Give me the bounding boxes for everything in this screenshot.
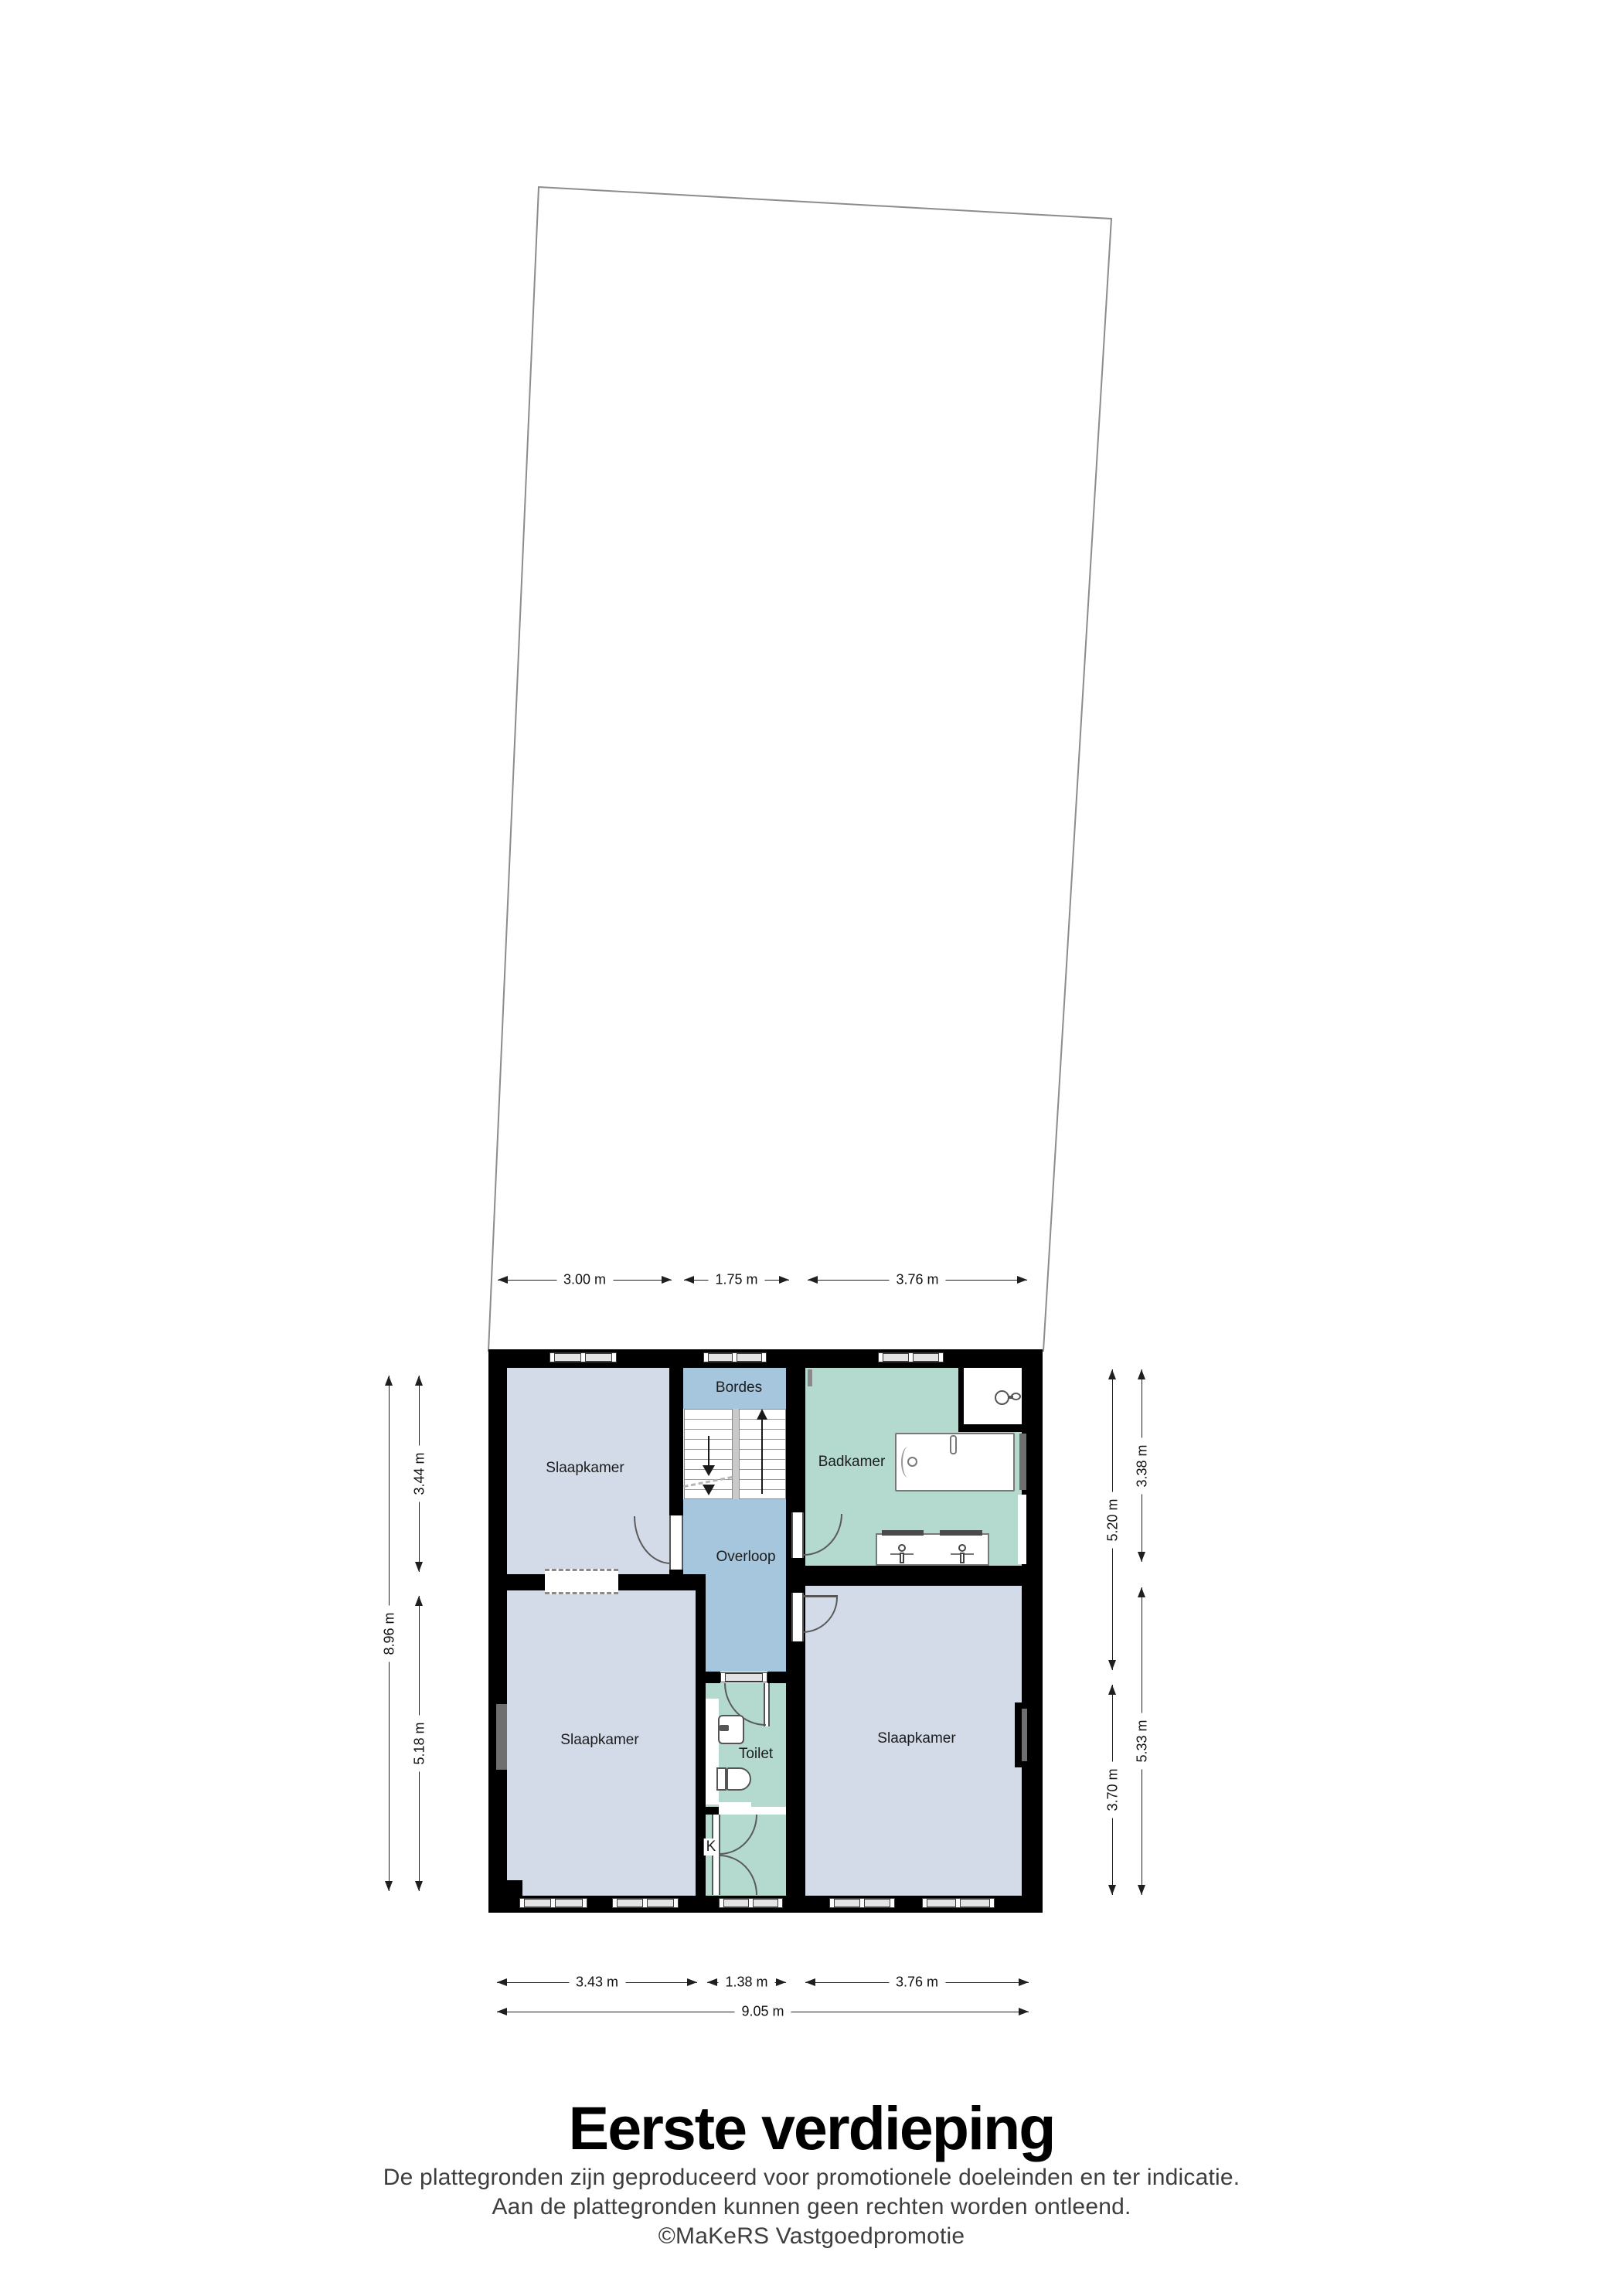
window-cap	[611, 1352, 617, 1362]
lot-outline	[0, 0, 1623, 2296]
window-cap	[938, 1352, 944, 1362]
left-wall-radiator	[496, 1704, 507, 1770]
stairs-up-arrow-shaft	[761, 1419, 763, 1494]
wall-corner-bottom-left	[488, 1880, 522, 1913]
label-slaapkamer-bottom-left: Slaapkamer	[560, 1732, 638, 1749]
badkamer-right-recess	[1018, 1495, 1026, 1564]
dim-bottom-total-label: 9.05 m	[734, 2004, 791, 2020]
vanity-tap-stem-right	[960, 1553, 965, 1563]
window-cap	[642, 1898, 648, 1908]
window-cap	[703, 1352, 709, 1362]
vanity-double-sink	[876, 1533, 989, 1566]
stairs-down-arrow-icon	[703, 1485, 715, 1495]
kast-threshold	[719, 1802, 751, 1809]
disclaimer: De plattegronden zijn geproduceerd voor …	[0, 2163, 1623, 2251]
window-cap	[550, 1352, 555, 1362]
stairs-down-arrow-icon	[703, 1465, 715, 1476]
dim-right-room-seg-2-label: 5.33 m	[1135, 1713, 1151, 1769]
label-kast: K	[704, 1839, 719, 1856]
dim-top-1-label: 3.00 m	[556, 1272, 613, 1288]
disclaimer-line-2: Aan de plattegronden kunnen geen rechten…	[0, 2192, 1623, 2222]
dim-right-room-seg-1: 3.38 m	[1142, 1369, 1142, 1562]
label-badkamer: Badkamer	[818, 1454, 886, 1471]
dim-top-3-label: 3.76 m	[889, 1272, 945, 1288]
toilet-door-opening	[720, 1672, 767, 1682]
wall-opening-dashed	[545, 1569, 618, 1594]
window-cap	[732, 1352, 737, 1362]
dim-right-room-seg-2: 5.33 m	[1142, 1587, 1142, 1895]
badkamer-corner-tick	[808, 1369, 812, 1386]
window-cap	[922, 1898, 927, 1908]
window-cap	[762, 1672, 767, 1682]
vanity-tap-left	[898, 1544, 906, 1552]
label-toilet: Toilet	[739, 1746, 773, 1763]
wall-alcove-left	[958, 1368, 964, 1424]
wall-alcove-bottom	[958, 1424, 1022, 1432]
window-cap	[761, 1352, 767, 1362]
label-overloop: Overloop	[716, 1549, 775, 1566]
wall-toilet-kast-divider	[706, 1807, 719, 1815]
dim-bottom-2-label: 1.38 m	[718, 1975, 774, 1991]
dim-top-1: 3.00 m	[498, 1280, 672, 1281]
window-cap	[989, 1898, 995, 1908]
dim-left-seg-1: 3.44 m	[419, 1376, 420, 1572]
dim-top-3: 3.76 m	[808, 1280, 1027, 1281]
bathtub-faucet	[950, 1435, 957, 1454]
dim-left-seg-2-label: 5.18 m	[412, 1715, 428, 1771]
vanity-shelf-right	[940, 1530, 982, 1536]
dim-right-seg-2: 3.70 m	[1112, 1685, 1113, 1895]
stairs-up-arrow-icon	[757, 1409, 767, 1420]
window-cap	[580, 1352, 586, 1362]
window-cap	[748, 1898, 754, 1908]
vanity-tap-stem-left	[900, 1553, 904, 1563]
toilet-washbasin-tap	[720, 1725, 729, 1731]
dim-bottom-2: 1.38 m	[707, 1982, 786, 1983]
bedroom-right-radiator	[1022, 1709, 1027, 1761]
dim-left-seg-1-label: 3.44 m	[412, 1445, 428, 1502]
dim-right-seg-2-label: 3.70 m	[1105, 1761, 1121, 1818]
window-cap	[720, 1672, 726, 1682]
dim-left-seg-2: 5.18 m	[419, 1596, 420, 1891]
window-cap	[550, 1898, 556, 1908]
door-badkamer	[791, 1512, 804, 1558]
dim-bottom-3: 3.76 m	[805, 1982, 1029, 1983]
floorplan-page: Slaapkamer Bordes Badkamer Overloop Slaa…	[0, 0, 1623, 2296]
window-cap	[908, 1352, 914, 1362]
label-bordes: Bordes	[716, 1379, 762, 1396]
bathtub-curve	[901, 1447, 915, 1478]
dim-top-2: 1.75 m	[684, 1280, 789, 1281]
dim-bottom-1: 3.43 m	[497, 1982, 697, 1983]
window-cap	[890, 1898, 895, 1908]
door-slaapkamer-top-left	[669, 1515, 683, 1570]
window-cap	[673, 1898, 679, 1908]
window-cap	[878, 1352, 883, 1362]
disclaimer-line-3: ©MaKeRS Vastgoedpromotie	[0, 2222, 1623, 2251]
wall-toilet-threshold-left	[706, 1672, 720, 1683]
disclaimer-line-1: De plattegronden zijn geproduceerd voor …	[0, 2163, 1623, 2192]
dim-right-seg-1-label: 5.20 m	[1105, 1492, 1121, 1548]
wall-toilet-threshold-right	[767, 1672, 786, 1683]
window-cap	[519, 1898, 525, 1908]
dim-left-total-label: 8.96 m	[382, 1605, 398, 1662]
page-title: Eerste verdieping	[0, 2093, 1623, 2164]
wall-left	[488, 1349, 507, 1913]
vanity-tap-right	[958, 1544, 966, 1552]
dim-bottom-3-label: 3.76 m	[889, 1975, 945, 1991]
badkamer-right-window	[1019, 1434, 1026, 1490]
wall-badkamer-bedroom	[786, 1566, 1022, 1586]
window-cap	[955, 1898, 961, 1908]
toilet-cistern	[716, 1767, 726, 1791]
dim-top-2-label: 1.75 m	[708, 1272, 764, 1288]
label-slaapkamer-right: Slaapkamer	[877, 1730, 955, 1747]
dim-left-total: 8.96 m	[389, 1376, 390, 1891]
dim-right-room-seg-1-label: 3.38 m	[1135, 1437, 1151, 1494]
room-overloop-lower	[696, 1574, 786, 1672]
window-cap	[582, 1898, 587, 1908]
window-cap	[777, 1898, 783, 1908]
vanity-shelf-left	[882, 1530, 924, 1536]
window-cap	[612, 1898, 618, 1908]
toilet-bowl	[726, 1767, 751, 1791]
stairs-gap	[733, 1409, 739, 1499]
window-cap	[859, 1898, 865, 1908]
alcove-washbasin	[995, 1390, 1009, 1405]
wall-radiator-bump-right	[1015, 1702, 1022, 1767]
alcove-washbasin-spout	[1009, 1396, 1013, 1399]
dim-bottom-total: 9.05 m	[497, 2012, 1029, 2012]
window-cap	[719, 1898, 724, 1908]
dim-right-seg-1: 5.20 m	[1112, 1369, 1113, 1670]
window-cap	[829, 1898, 835, 1908]
dim-bottom-1-label: 3.43 m	[569, 1975, 625, 1991]
label-slaapkamer-top-left: Slaapkamer	[546, 1460, 624, 1477]
